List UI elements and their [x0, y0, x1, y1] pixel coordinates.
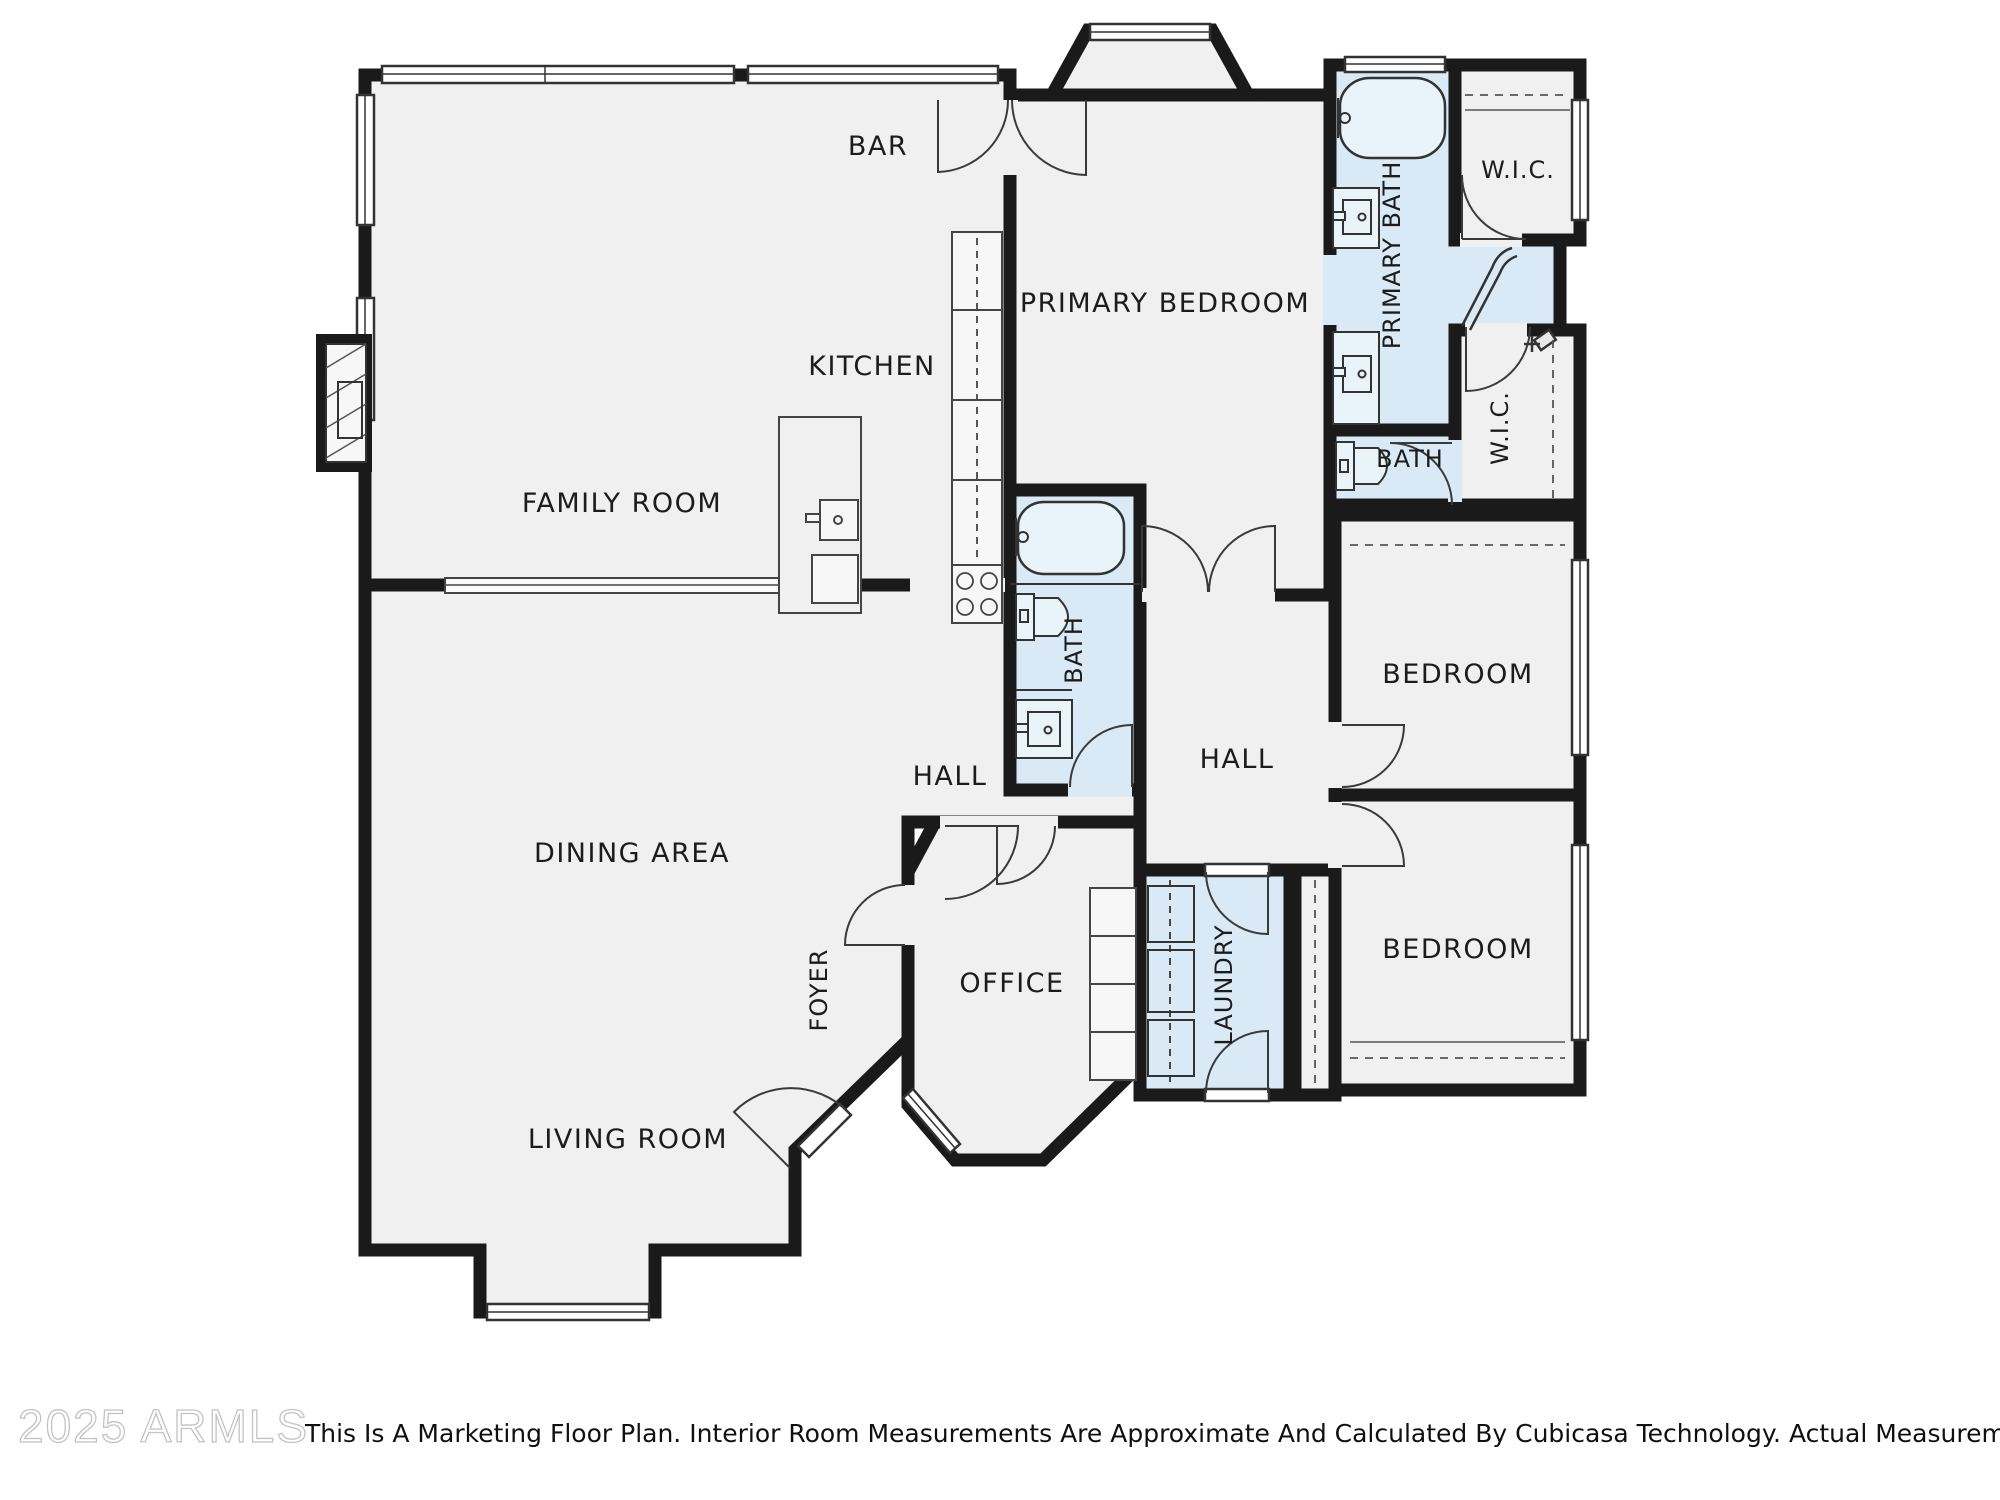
opening-wic2-door: [1465, 323, 1527, 337]
label-foyer: FOYER: [805, 949, 833, 1032]
floor-plan-drawing: BAR KITCHEN FAMILY ROOM PRIMARY BEDROOM …: [0, 0, 2000, 1500]
floor-plan-page: BAR KITCHEN FAMILY ROOM PRIMARY BEDROOM …: [0, 0, 2000, 1500]
label-bar: BAR: [848, 131, 908, 162]
opening-bar-bedroom: [1002, 100, 1018, 175]
primary-tub: [1338, 78, 1445, 158]
label-primary-bath: PRIMARY BATH: [1378, 161, 1406, 350]
opening-primary-bath-entry: [1323, 255, 1337, 325]
opening-bedroom1-door: [1328, 722, 1342, 788]
label-small-bath: BATH: [1376, 445, 1444, 473]
label-dining-area: DINING AREA: [534, 838, 730, 869]
room-wic-mid: [1455, 330, 1580, 505]
kitchen-island: [779, 417, 861, 613]
opening-bedroom2-door: [1328, 802, 1342, 868]
label-living-room: LIVING ROOM: [528, 1124, 728, 1155]
disclaimer-text: This Is A Marketing Floor Plan. Interior…: [304, 1419, 2000, 1448]
kitchen-counter: [952, 232, 1002, 565]
opening-hallbath-door: [1068, 783, 1132, 797]
primary-vanity-lower: [1333, 332, 1379, 424]
label-laundry: LAUNDRY: [1210, 924, 1238, 1045]
label-wic-top: W.I.C.: [1481, 156, 1555, 184]
fireplace: [316, 334, 372, 472]
stove: [952, 565, 1002, 623]
room-bedroom-upper: [1335, 515, 1580, 795]
hall-bath-vanity: [1016, 690, 1072, 758]
primary-vanity-upper: [1333, 188, 1379, 248]
office-cabinets: [1090, 888, 1136, 1080]
label-primary-bedroom: PRIMARY BEDROOM: [1020, 288, 1310, 319]
label-hall-right: HALL: [1200, 744, 1275, 775]
label-office: OFFICE: [959, 968, 1064, 999]
label-family-room: FAMILY ROOM: [522, 488, 722, 519]
label-wic-mid: W.I.C.: [1486, 391, 1514, 465]
opening-office-doors: [940, 816, 1058, 829]
armls-watermark: 2025 ARMLS: [18, 1400, 309, 1452]
label-bedroom-lower: BEDROOM: [1382, 934, 1533, 965]
room-hall-right: [1140, 595, 1335, 870]
label-hall-bath: BATH: [1060, 616, 1088, 684]
label-hall-center: HALL: [913, 761, 988, 792]
label-bedroom-upper: BEDROOM: [1382, 659, 1533, 690]
cased-opening: [445, 578, 830, 593]
opening-office-side-door: [901, 885, 915, 945]
label-kitchen: KITCHEN: [808, 351, 936, 382]
